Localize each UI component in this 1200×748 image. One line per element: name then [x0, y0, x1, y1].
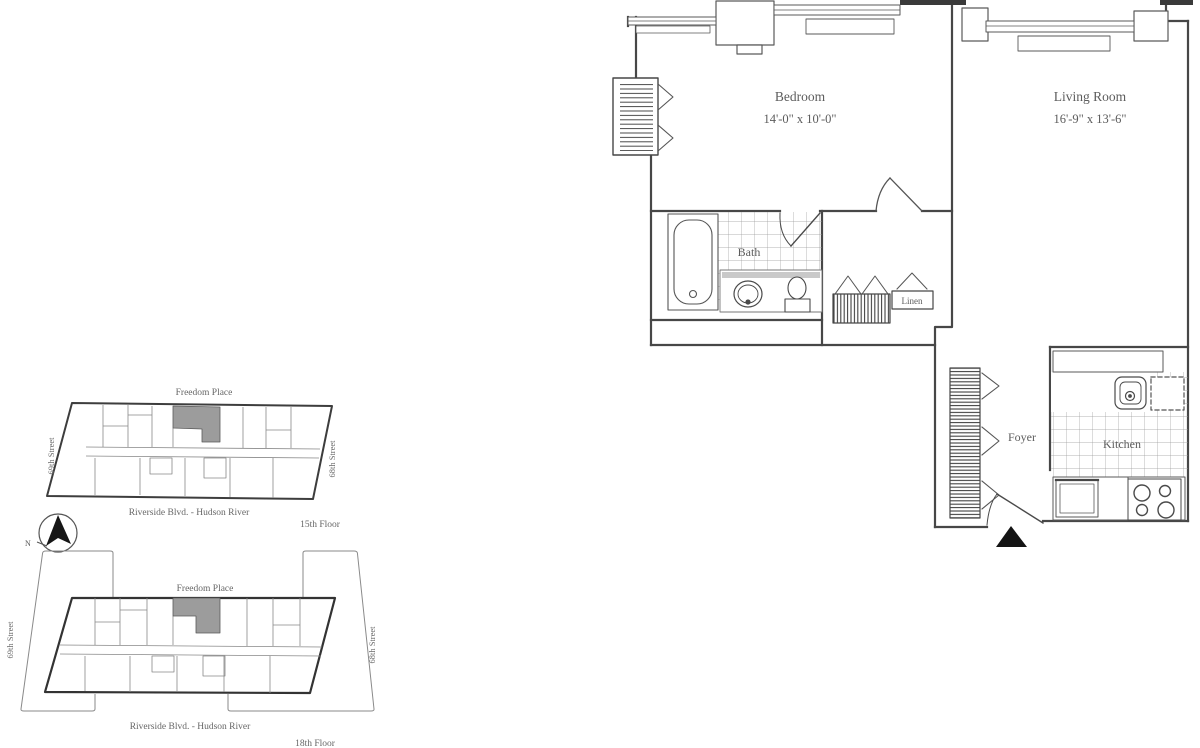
refrigerator-outline-icon — [1151, 377, 1184, 410]
floor-plan-sheet: Bath Linen Foyer — [0, 0, 1200, 748]
keyplan15-floor-label: 15th Floor — [300, 520, 341, 530]
kitchen-area: Kitchen — [1051, 351, 1188, 520]
keyplan15-left-street-label: 69th Street — [46, 437, 56, 475]
kitchen-base-counter — [1053, 477, 1185, 520]
foyer-label: Foyer — [1008, 430, 1036, 444]
foyer-area: Foyer — [950, 368, 1043, 547]
bedroom-dimensions: 14'-0" x 10'-0" — [763, 112, 836, 126]
bath-room: Bath — [668, 212, 822, 312]
counter-appliance-icon — [1056, 480, 1098, 517]
kitchen-counter-top — [1053, 351, 1163, 372]
entry-marker-icon — [996, 526, 1027, 547]
keyplan18-bottom-street-label: Riverside Blvd. - Hudson River — [130, 722, 251, 732]
kitchen-label: Kitchen — [1103, 437, 1141, 451]
compass-icon: N — [25, 514, 77, 552]
keyplan15-top-street-label: Freedom Place — [176, 388, 233, 398]
keyplan15-right-street-label: 68th Street — [327, 440, 337, 478]
keyplan-18th-floor: Freedom Place Riverside Blvd. - Hudson R… — [5, 551, 377, 748]
living-room-dimensions: 16'-9" x 13'-6" — [1053, 112, 1126, 126]
living-room-window-icon — [986, 21, 1134, 51]
living-room: Living Room 16'-9" x 13'-6" — [1053, 89, 1126, 126]
linen-closet: Linen — [892, 273, 933, 309]
compass-north-label: N — [25, 539, 31, 548]
foyer-closet-door-chevrons — [982, 373, 999, 509]
keyplan18-right-street-label: 68th Street — [367, 626, 377, 664]
hall-closet-icon — [833, 276, 890, 323]
kitchen-sink-icon — [1115, 377, 1146, 409]
bathtub-icon — [668, 214, 718, 310]
top-right-wall-bar — [1160, 0, 1193, 5]
keyplan18-floor-label: 18th Floor — [295, 739, 336, 748]
stove-icon — [1128, 479, 1181, 520]
keyplan18-top-street-label: Freedom Place — [177, 584, 234, 594]
keyplan-15th-floor: Freedom Place Riverside Blvd. - Hudson R… — [46, 388, 341, 530]
bedroom-room: Bedroom 14'-0" x 10'-0" — [763, 89, 836, 126]
main-unit-plan: Bath Linen Foyer — [613, 0, 1193, 547]
living-room-label: Living Room — [1054, 89, 1127, 104]
bedroom-window-top-icon — [774, 5, 900, 34]
keyplan18-left-street-label: 69th Street — [5, 621, 15, 659]
foyer-closet-icon — [950, 368, 980, 518]
top-wall-bar — [900, 0, 966, 5]
linen-label: Linen — [902, 296, 923, 306]
bedroom-label: Bedroom — [775, 89, 826, 104]
bedroom-window-left-icon — [628, 17, 716, 33]
bedroom-closet-icon — [613, 78, 673, 155]
keyplan15-bottom-street-label: Riverside Blvd. - Hudson River — [129, 508, 250, 518]
bath-label: Bath — [738, 245, 761, 259]
bath-vanity — [720, 270, 822, 312]
bath-sink-icon — [734, 281, 762, 307]
bedroom-door-icon — [876, 178, 922, 211]
